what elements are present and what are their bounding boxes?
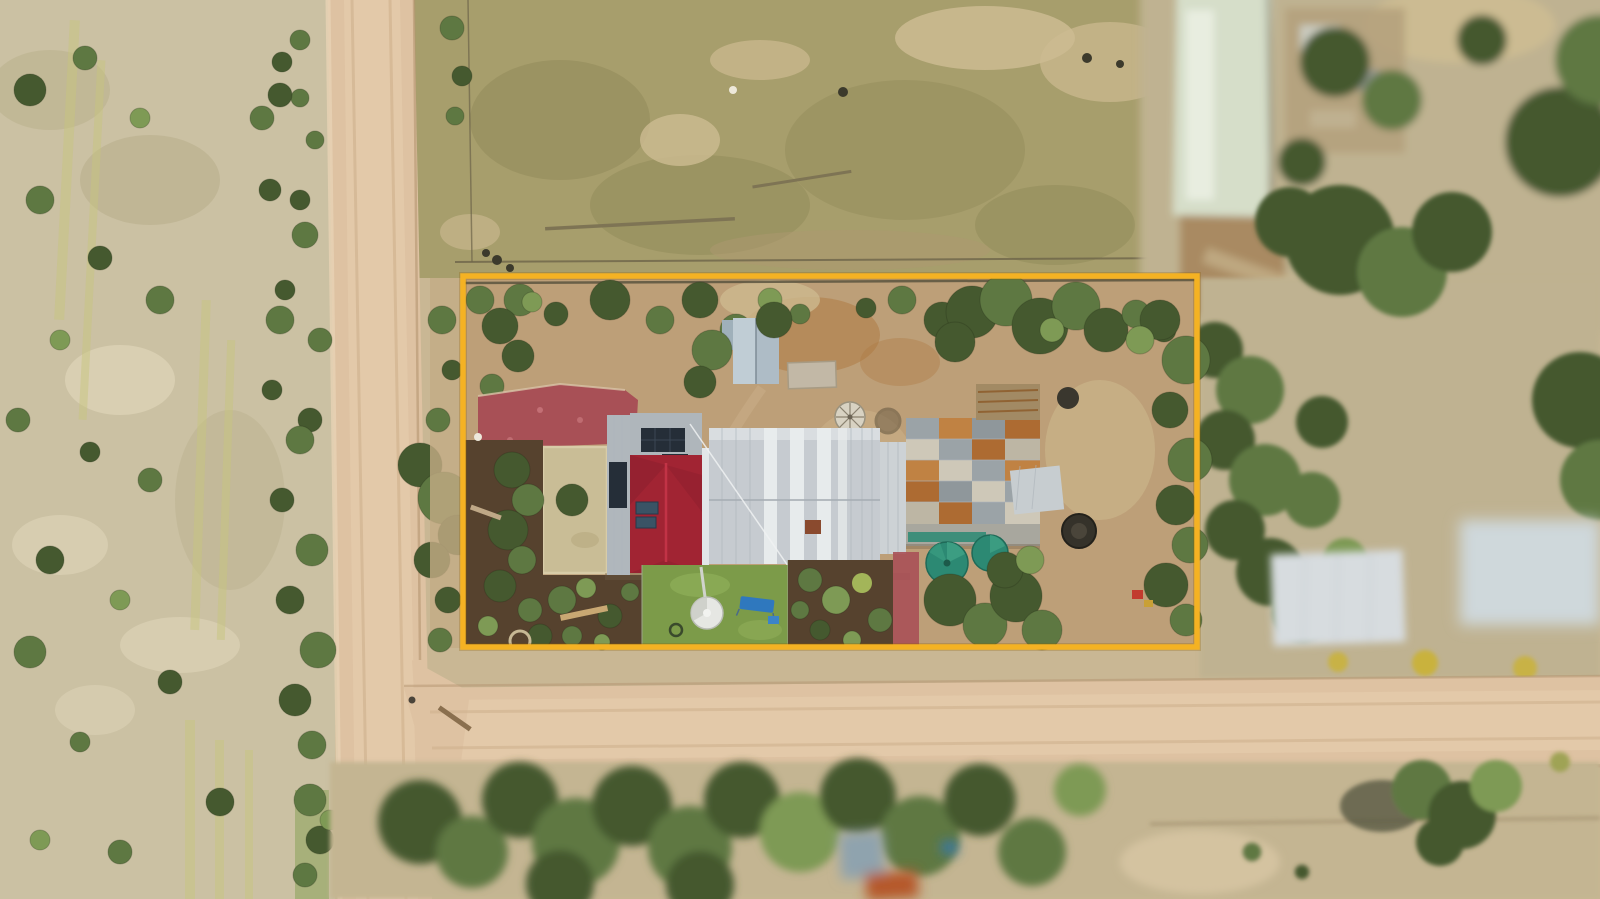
green-lawn [642, 560, 788, 647]
red-paved-path [893, 552, 919, 648]
dry-lawn-square [543, 447, 607, 573]
blue-garden-item [768, 616, 779, 624]
red-object [1132, 590, 1143, 599]
aerial-photo-stage: Top-down aerial photograph of a rural lo… [0, 0, 1600, 899]
farmhouse-red-roof [630, 455, 702, 573]
south-band [330, 752, 1600, 899]
northeast-neighbour-shed [1173, 0, 1272, 217]
windmill-disc [835, 402, 865, 432]
white-object [729, 86, 737, 94]
roof-vent [805, 520, 821, 534]
roof-skylight-strip [790, 428, 804, 564]
junction-post [409, 697, 416, 704]
left-scrub-field [0, 0, 335, 899]
roof-skylight-strip [838, 428, 847, 564]
skylight [636, 517, 656, 528]
carport-roof [880, 442, 906, 554]
roof-skylight-strip [764, 428, 777, 564]
north-paddock [412, 0, 1202, 278]
roof-skylight-strip [817, 428, 831, 564]
concrete-pad [788, 361, 837, 389]
skylight [636, 502, 658, 514]
dark-pond [1057, 387, 1079, 409]
south-garden-strip [788, 560, 893, 649]
solar-panels-west [609, 462, 627, 508]
lot-interior [463, 274, 1212, 651]
verandah-edge [908, 532, 986, 542]
yellow-object [1144, 600, 1153, 607]
aerial-photo [0, 0, 1600, 899]
farmhouse-white-roof [709, 428, 880, 564]
